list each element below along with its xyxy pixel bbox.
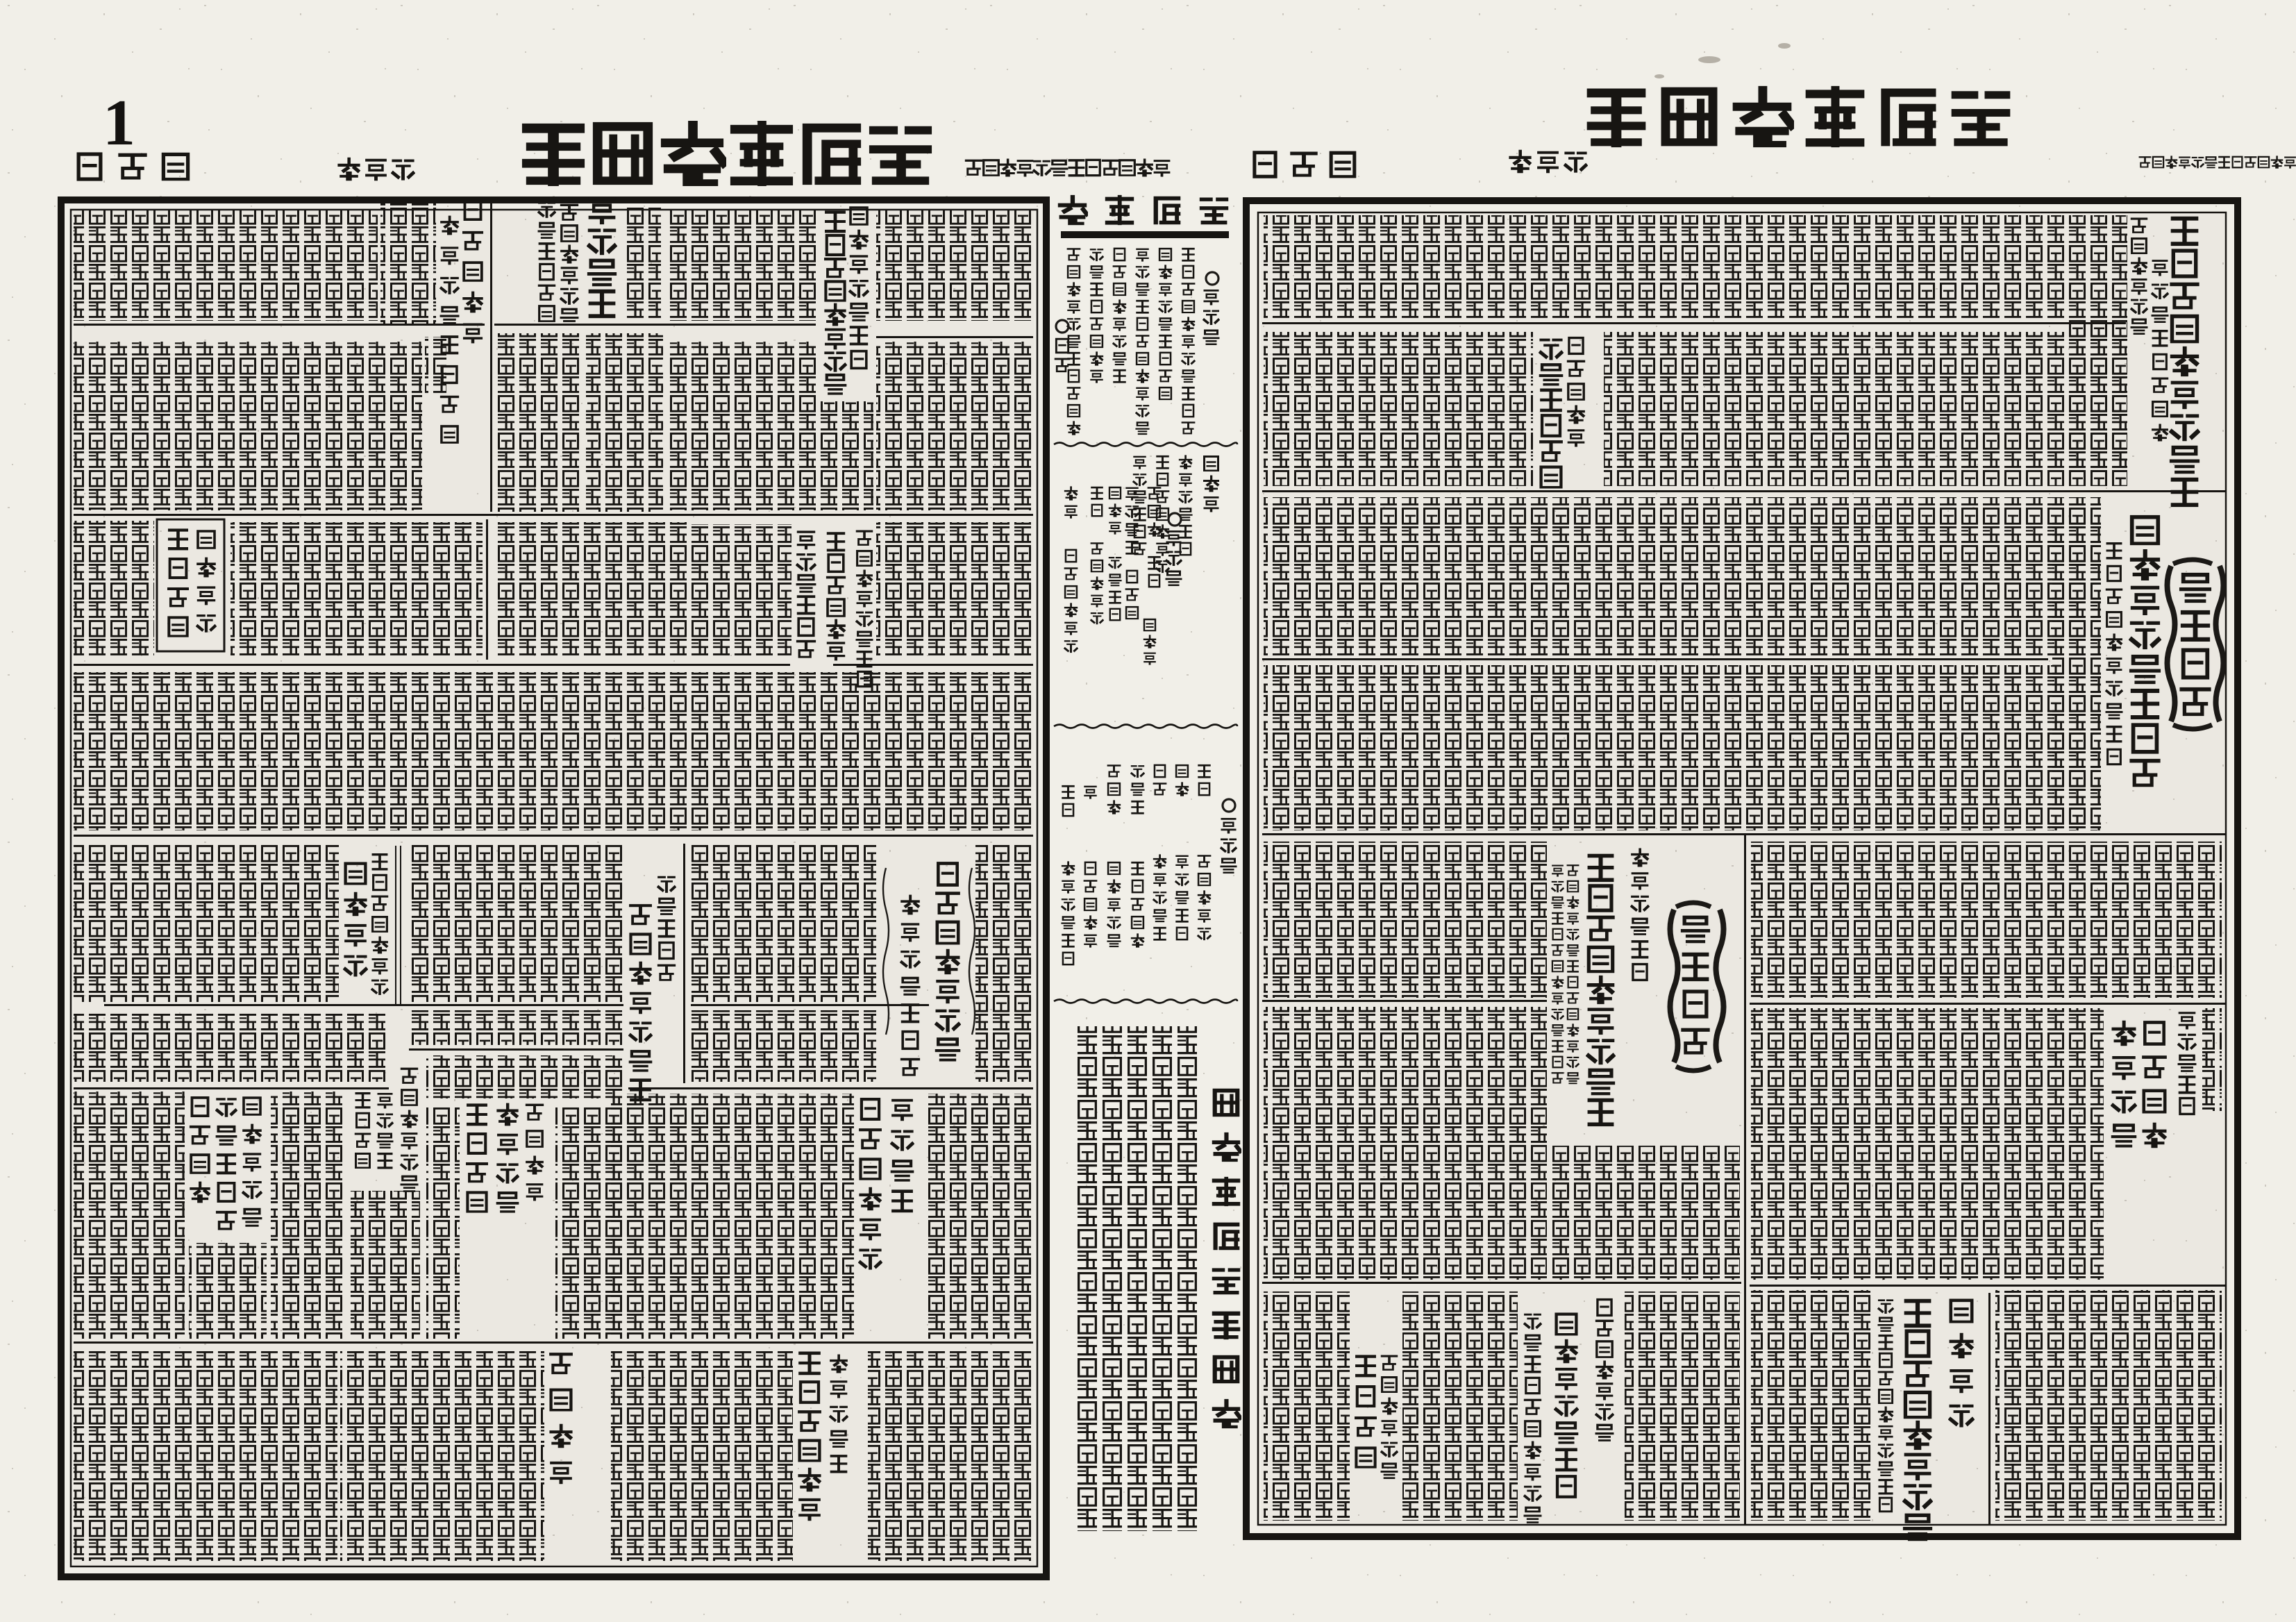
svg-text:1: 1 xyxy=(103,87,135,159)
